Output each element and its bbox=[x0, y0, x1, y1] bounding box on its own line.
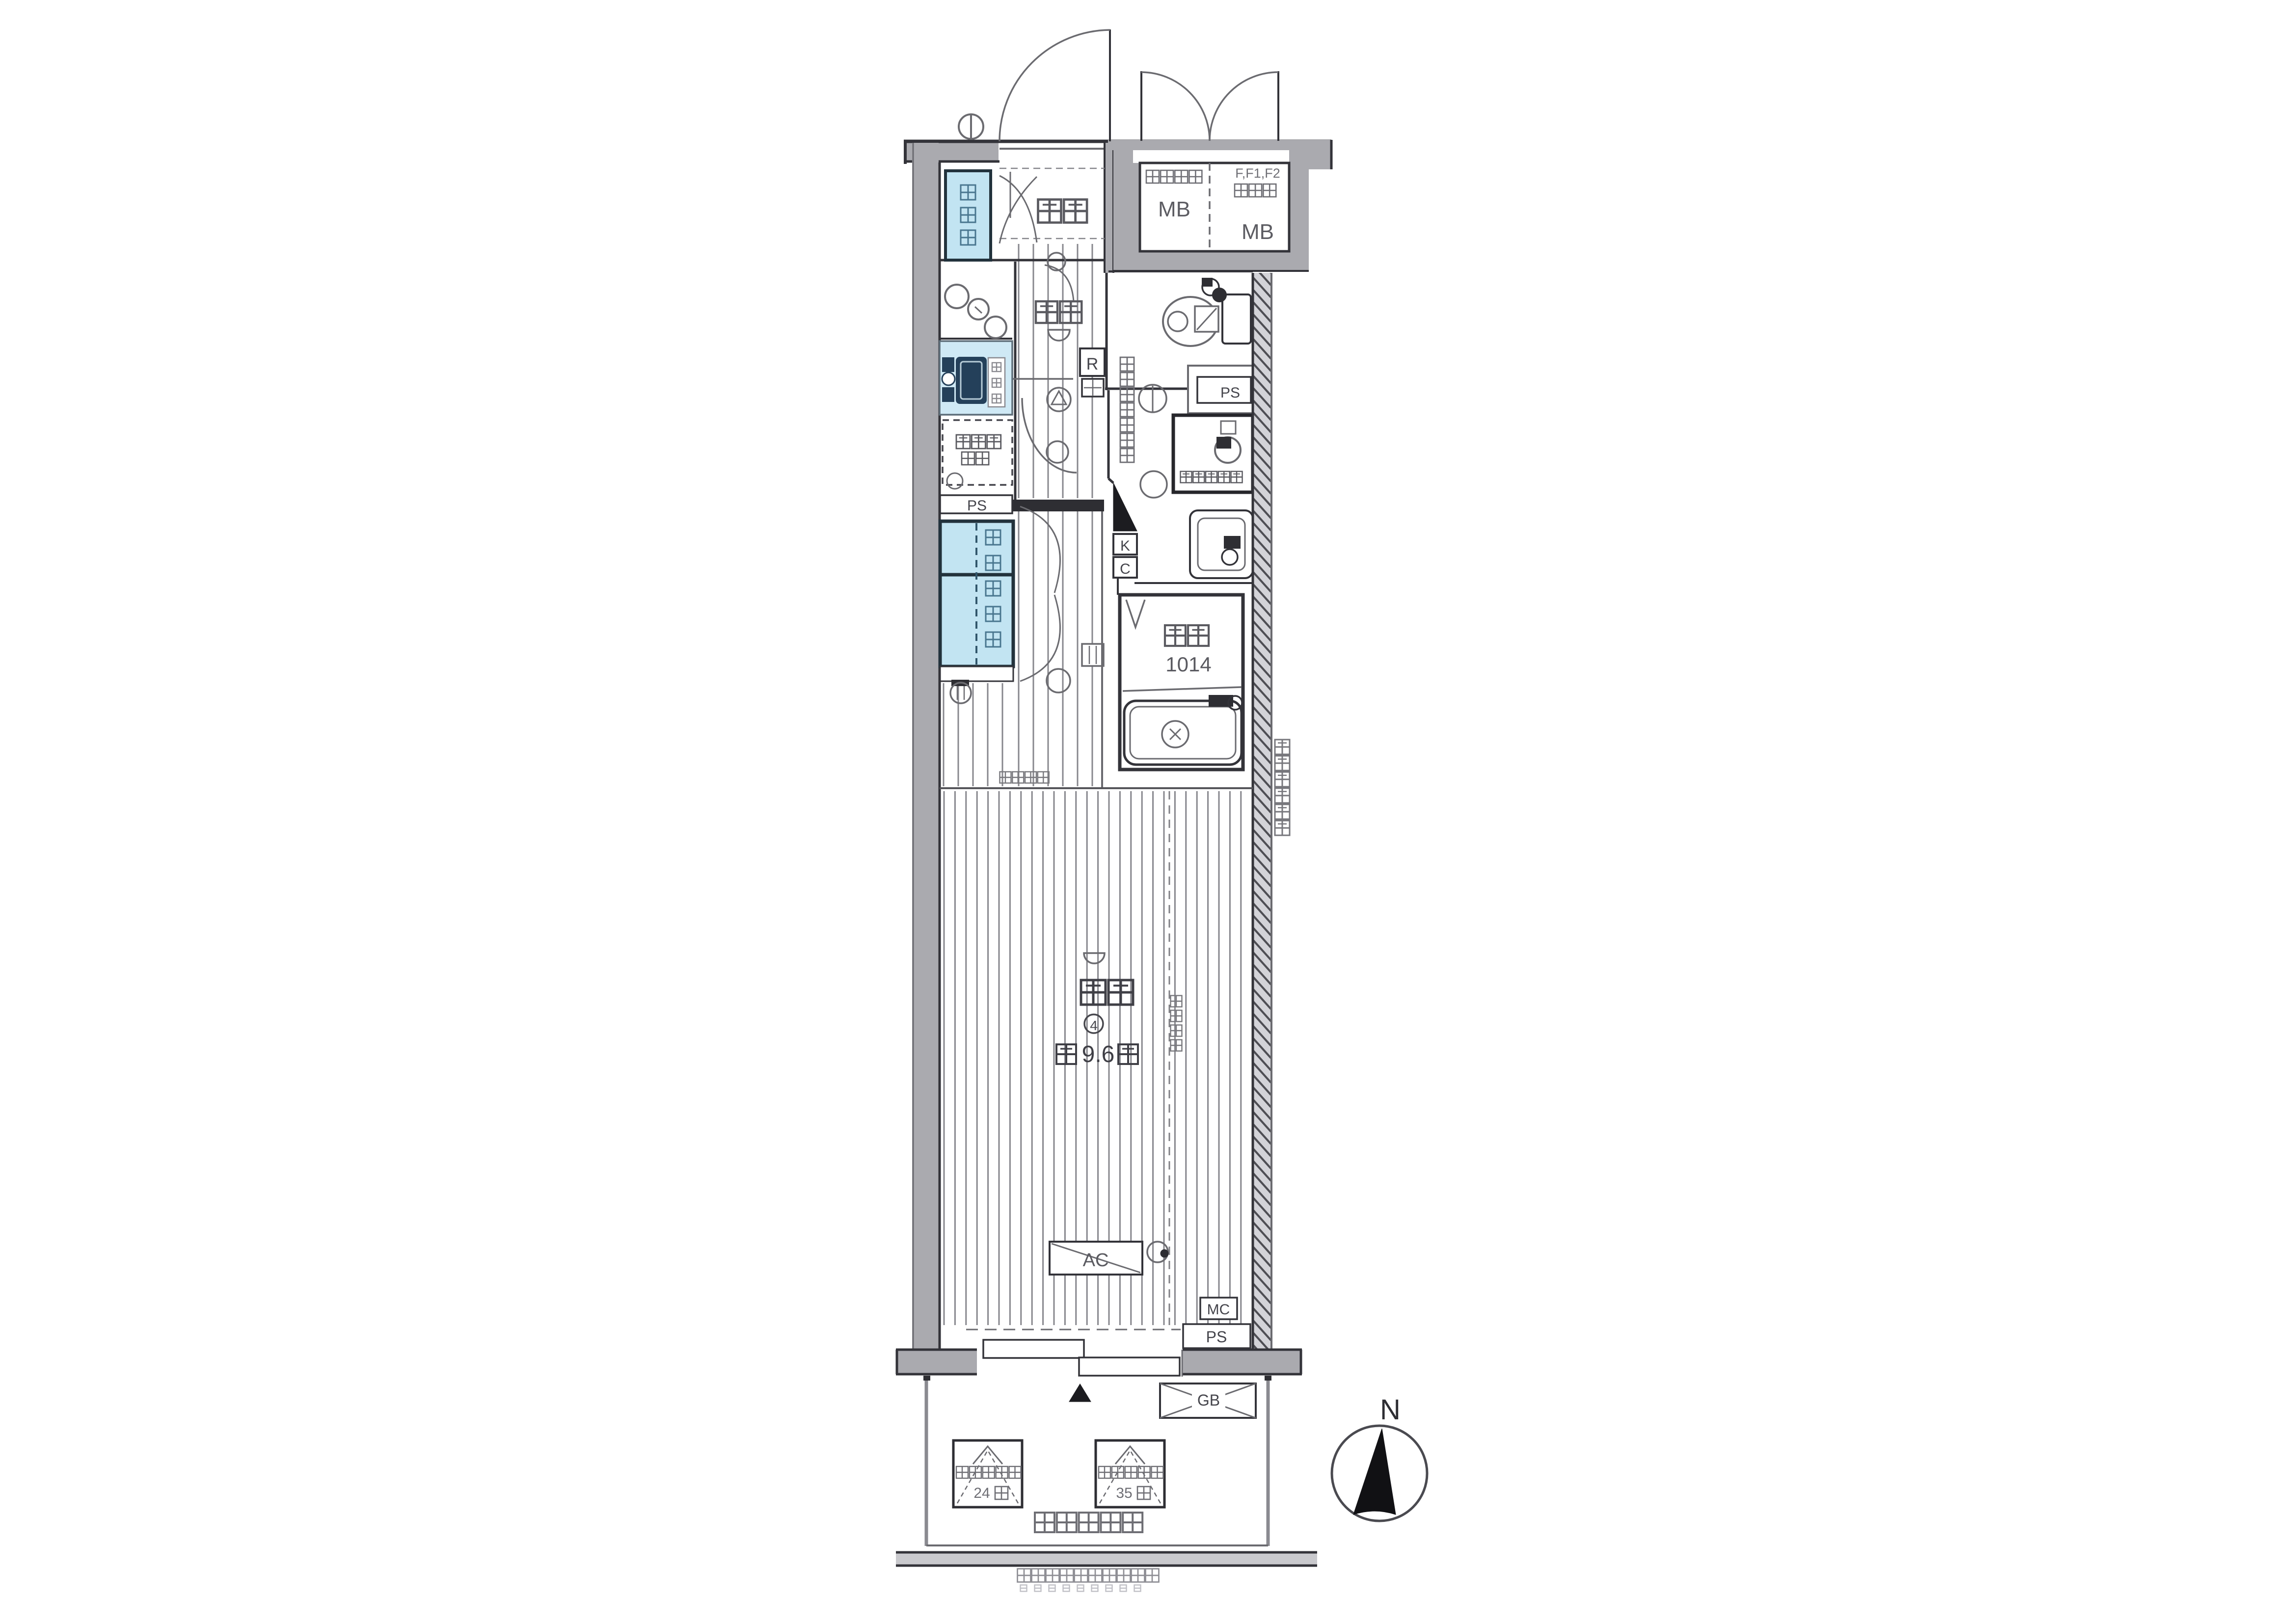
svg-text:MB: MB bbox=[1158, 197, 1190, 221]
svg-text:1014: 1014 bbox=[1165, 653, 1211, 676]
svg-text:PS: PS bbox=[1206, 1328, 1227, 1346]
svg-text:N: N bbox=[1380, 1394, 1401, 1426]
svg-text:9.6: 9.6 bbox=[1082, 1041, 1115, 1067]
svg-text:24: 24 bbox=[973, 1485, 990, 1501]
svg-text:R: R bbox=[1086, 355, 1099, 373]
svg-text:35: 35 bbox=[1116, 1485, 1132, 1501]
svg-text:F,F1,F2: F,F1,F2 bbox=[1235, 166, 1280, 181]
svg-text:MC: MC bbox=[1207, 1302, 1230, 1318]
svg-text:C: C bbox=[1120, 561, 1131, 577]
svg-text:4: 4 bbox=[1090, 1018, 1098, 1033]
svg-text:K: K bbox=[1120, 538, 1130, 554]
svg-text:AC: AC bbox=[1083, 1250, 1109, 1271]
svg-text:PS: PS bbox=[1220, 385, 1240, 401]
svg-text:PS: PS bbox=[967, 498, 987, 514]
svg-text:MB: MB bbox=[1242, 220, 1274, 244]
svg-text:GB: GB bbox=[1197, 1391, 1220, 1409]
